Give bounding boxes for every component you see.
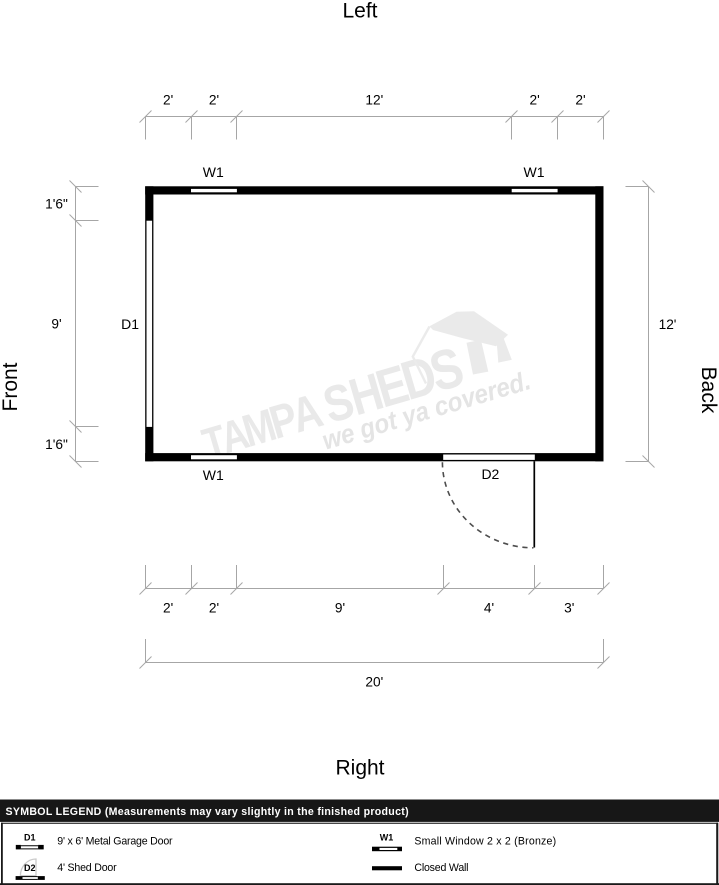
svg-text:12': 12' <box>365 93 383 108</box>
svg-text:Left: Left <box>342 0 377 23</box>
svg-text:Front: Front <box>0 362 22 411</box>
svg-text:D1: D1 <box>121 316 139 332</box>
svg-text:2': 2' <box>575 93 585 108</box>
svg-text:W1: W1 <box>380 833 394 843</box>
svg-text:4': 4' <box>484 601 494 616</box>
svg-text:2': 2' <box>209 93 219 108</box>
svg-text:1'6": 1'6" <box>45 437 68 452</box>
svg-text:D2: D2 <box>24 863 36 873</box>
svg-text:1'6": 1'6" <box>45 196 68 211</box>
svg-text:9': 9' <box>335 601 345 616</box>
svg-text:Small Window 2 x 2 (Bronze): Small Window 2 x 2 (Bronze) <box>414 835 556 847</box>
svg-text:2': 2' <box>529 93 539 108</box>
svg-text:12': 12' <box>659 317 677 332</box>
svg-text:SYMBOL LEGEND (Measurements ma: SYMBOL LEGEND (Measurements may vary sli… <box>6 806 409 818</box>
svg-text:W1: W1 <box>203 467 224 483</box>
svg-text:2': 2' <box>163 93 173 108</box>
svg-text:W1: W1 <box>203 164 224 180</box>
svg-text:9': 9' <box>51 317 61 332</box>
svg-text:9' x 6' Metal Garage Door: 9' x 6' Metal Garage Door <box>57 835 173 847</box>
svg-text:D1: D1 <box>24 832 36 842</box>
svg-text:4' Shed Door: 4' Shed Door <box>57 862 117 874</box>
svg-text:D2: D2 <box>481 466 499 482</box>
svg-text:Back: Back <box>697 367 719 414</box>
svg-text:W1: W1 <box>524 164 545 180</box>
svg-text:20': 20' <box>365 675 383 690</box>
svg-text:2': 2' <box>209 601 219 616</box>
svg-text:Right: Right <box>335 756 384 779</box>
svg-text:Closed Wall: Closed Wall <box>414 862 468 874</box>
svg-text:2': 2' <box>163 601 173 616</box>
svg-text:3': 3' <box>564 601 574 616</box>
